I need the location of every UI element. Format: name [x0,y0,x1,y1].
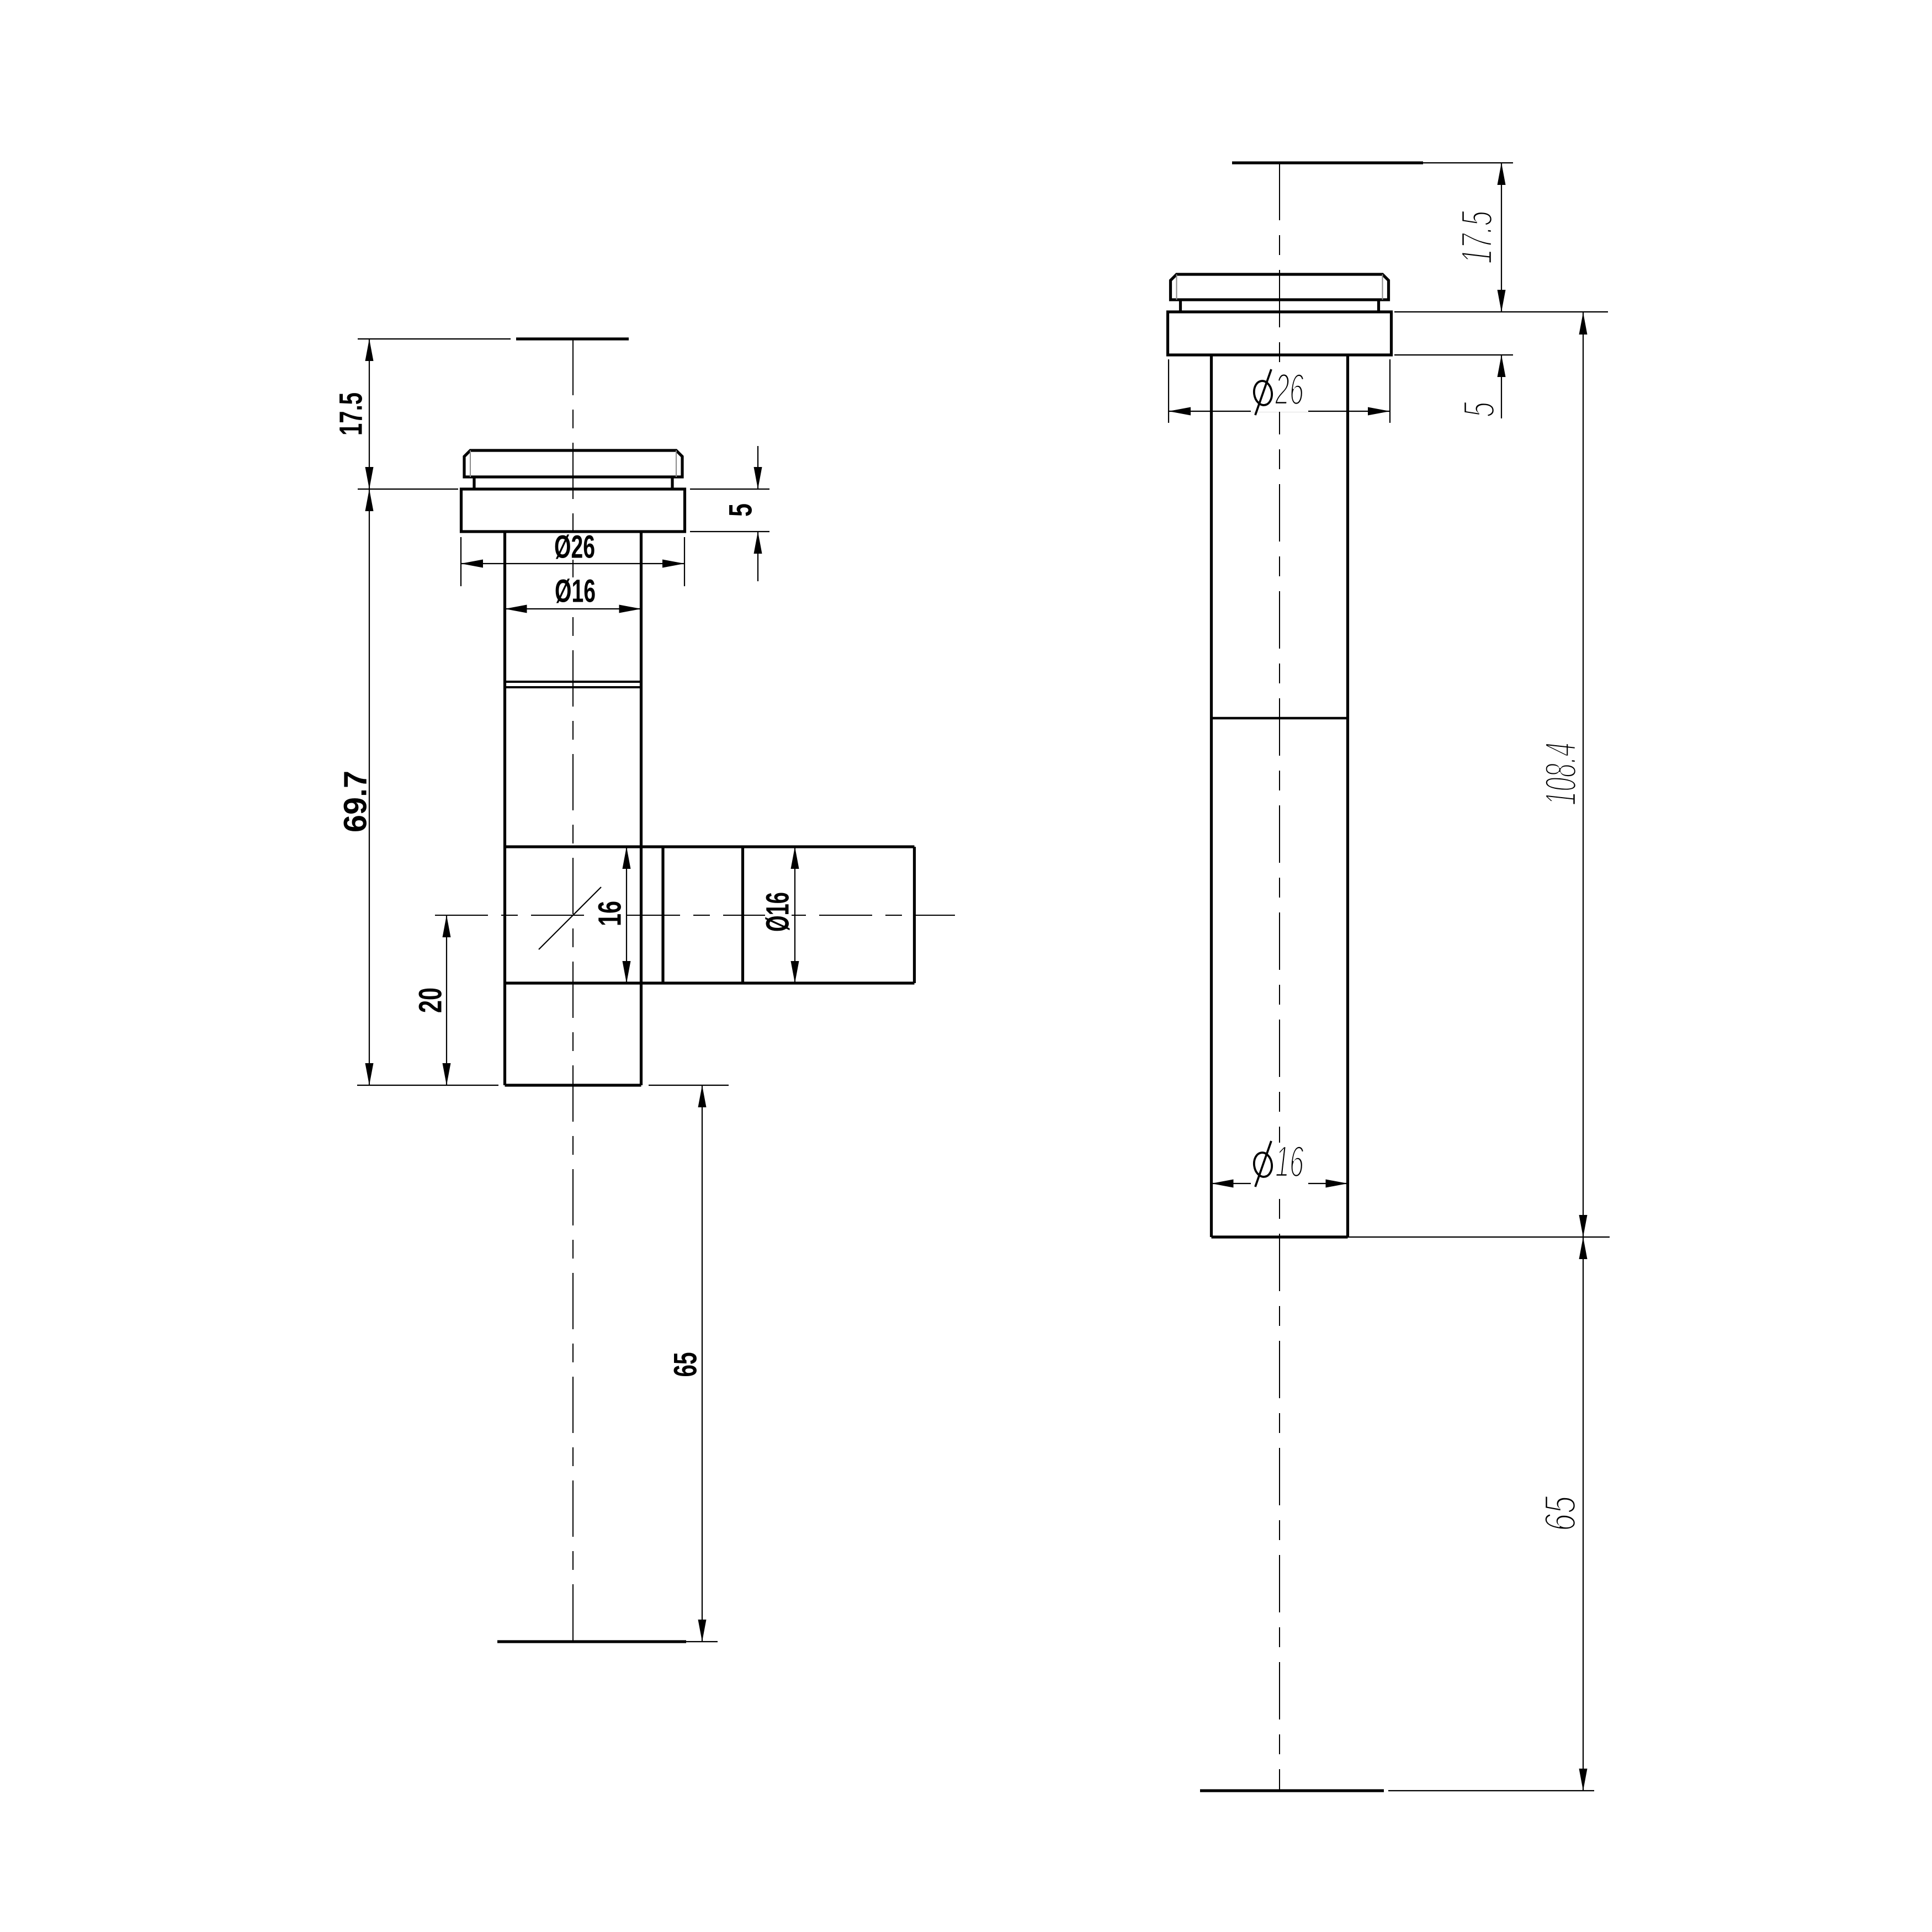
svg-text:16: 16 [592,901,628,926]
svg-text:20: 20 [413,988,449,1013]
svg-text:69.7: 69.7 [338,771,374,832]
svg-text:65: 65 [1536,1496,1585,1531]
svg-text:16: 16 [1275,1137,1304,1186]
svg-text:17.5: 17.5 [1452,211,1501,264]
svg-text:65: 65 [668,1352,704,1377]
svg-text:26: 26 [1275,365,1304,414]
svg-text:5: 5 [723,503,759,517]
svg-text:Ø16: Ø16 [760,892,796,932]
svg-text:108.4: 108.4 [1536,742,1585,805]
svg-text:5: 5 [1455,402,1504,417]
svg-text:Ø16: Ø16 [555,574,596,609]
svg-text:17.5: 17.5 [333,392,369,436]
svg-text:Ø26: Ø26 [554,529,595,565]
